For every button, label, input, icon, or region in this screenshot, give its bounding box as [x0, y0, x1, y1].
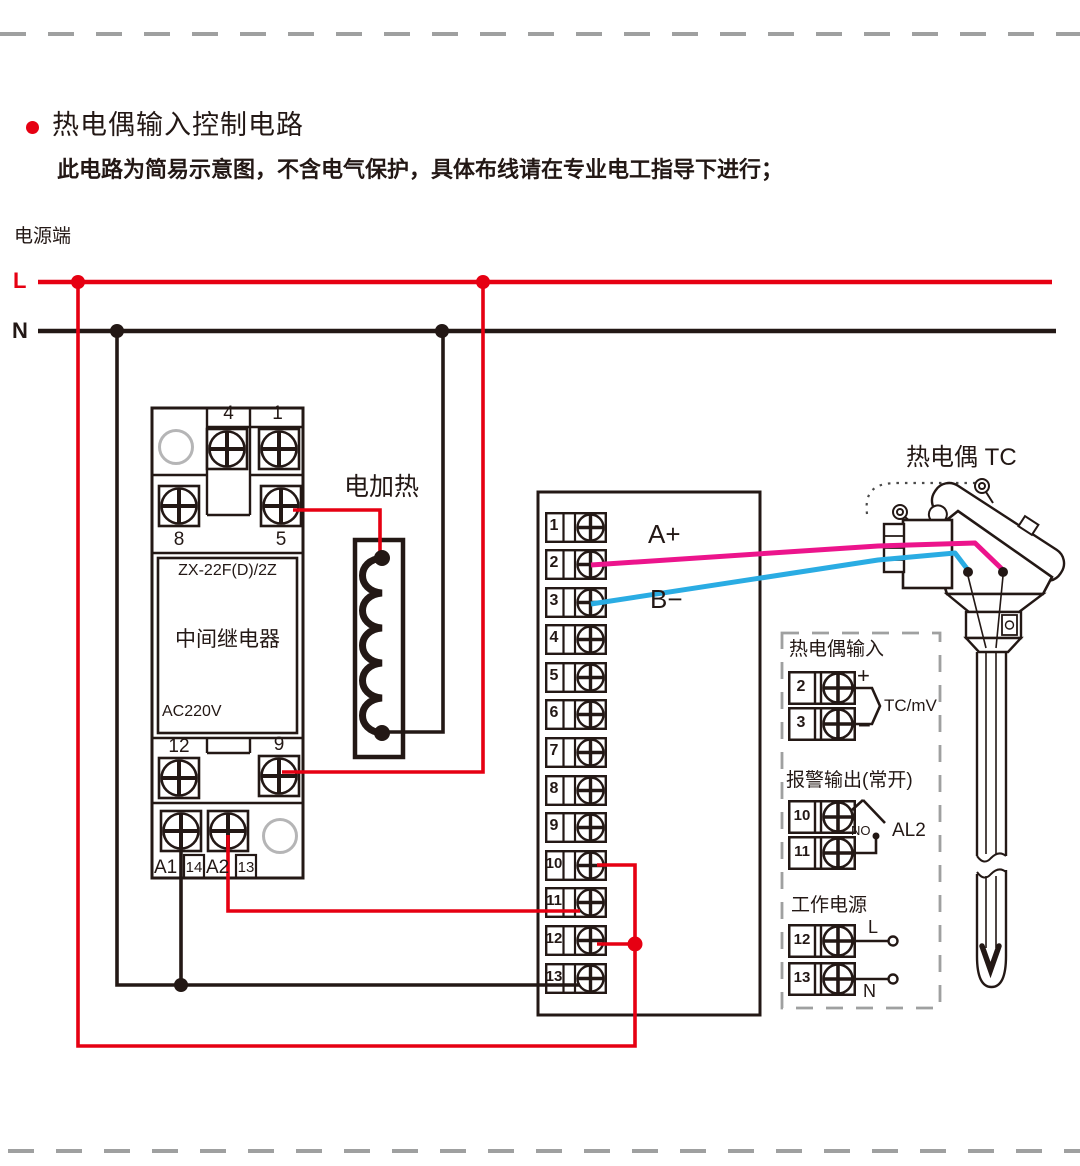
thermocouple-label: 热电偶 TC	[906, 444, 1017, 472]
block-terminal-7: 7	[543, 742, 565, 760]
relay-terminal-5: 5	[260, 529, 302, 551]
screw-icon	[261, 486, 301, 526]
title-bullet-icon	[26, 121, 39, 134]
io-alarm-terminal-11: 11	[787, 843, 817, 860]
block-terminal-12: 12	[542, 930, 566, 947]
b-minus-label: B−	[650, 585, 683, 615]
wiring-diagram-page: 热电偶输入控制电路 此电路为简易示意图，不含电气保护，具体布线请在专业电工指导下…	[0, 0, 1080, 1166]
io-power-terminal-13: 13	[787, 969, 817, 986]
heater-label: 电加热	[344, 473, 419, 502]
block-terminal-9: 9	[543, 817, 565, 835]
io-alarm-terminal-10: 10	[787, 807, 817, 824]
relay-voltage: AC220V	[162, 703, 222, 721]
power-end-label: 电源端	[14, 226, 71, 248]
relay-terminal-a1: A1	[154, 857, 177, 879]
block-terminal-4: 4	[543, 629, 565, 647]
io-power-l: L	[868, 917, 878, 938]
relay-terminal-9: 9	[257, 734, 301, 756]
page-title: 热电偶输入控制电路	[52, 110, 304, 141]
screw-icon	[207, 429, 247, 469]
relay-terminal-a2: A2	[206, 857, 229, 879]
relay-name: 中间继电器	[158, 628, 297, 652]
relay-terminal-1: 1	[252, 403, 303, 425]
io-input-minus: −	[858, 713, 871, 738]
block-terminal-5: 5	[543, 667, 565, 685]
io-input-terminal-3: 3	[788, 714, 814, 732]
relay-terminal-8: 8	[158, 529, 200, 551]
relay-terminal-13: 13	[236, 859, 256, 876]
relay-terminal-4: 4	[207, 403, 250, 425]
block-terminal-6: 6	[543, 704, 565, 722]
block-terminal-1: 1	[543, 517, 565, 535]
io-input-plus: +	[857, 663, 870, 688]
line-l-label: L	[13, 268, 26, 293]
block-terminal-2: 2	[543, 554, 565, 572]
line-n-label: N	[12, 318, 28, 343]
relay-terminal-12: 12	[158, 736, 200, 758]
io-alarm-name: AL2	[892, 820, 926, 842]
io-alarm-title: 报警输出(常开)	[786, 770, 913, 792]
a-plus-label: A+	[648, 520, 681, 550]
io-power-n: N	[863, 981, 876, 1002]
screw-icon	[159, 758, 199, 798]
screw-icon	[259, 756, 299, 796]
power-bus	[38, 282, 1056, 331]
io-power-terminal-12: 12	[787, 931, 817, 948]
controller-terminal-block	[538, 492, 760, 1015]
probe-shaft	[977, 652, 1006, 987]
relay-model: ZX-22F(D)/2Z	[158, 562, 297, 580]
block-terminal-3: 3	[543, 592, 565, 610]
block-terminal-10: 10	[542, 855, 566, 872]
page-subtitle: 此电路为简易示意图，不含电气保护，具体布线请在专业电工指导下进行；	[57, 157, 783, 182]
power-pigtails	[856, 937, 898, 984]
io-input-signal: TC/mV	[884, 696, 937, 716]
io-input-terminal-2: 2	[788, 678, 814, 696]
screw-icon	[159, 486, 199, 526]
probe-tip-mark	[982, 946, 999, 970]
block-terminal-8: 8	[543, 780, 565, 798]
io-power-title: 工作电源	[791, 895, 867, 917]
block-terminal-11: 11	[542, 892, 566, 909]
relay-terminal-14: 14	[184, 859, 204, 876]
io-input-title: 热电偶输入	[789, 639, 884, 661]
block-terminal-13: 13	[542, 968, 566, 985]
io-alarm-no: NO	[851, 824, 871, 839]
heater-element	[355, 540, 403, 757]
screw-icon	[259, 429, 299, 469]
